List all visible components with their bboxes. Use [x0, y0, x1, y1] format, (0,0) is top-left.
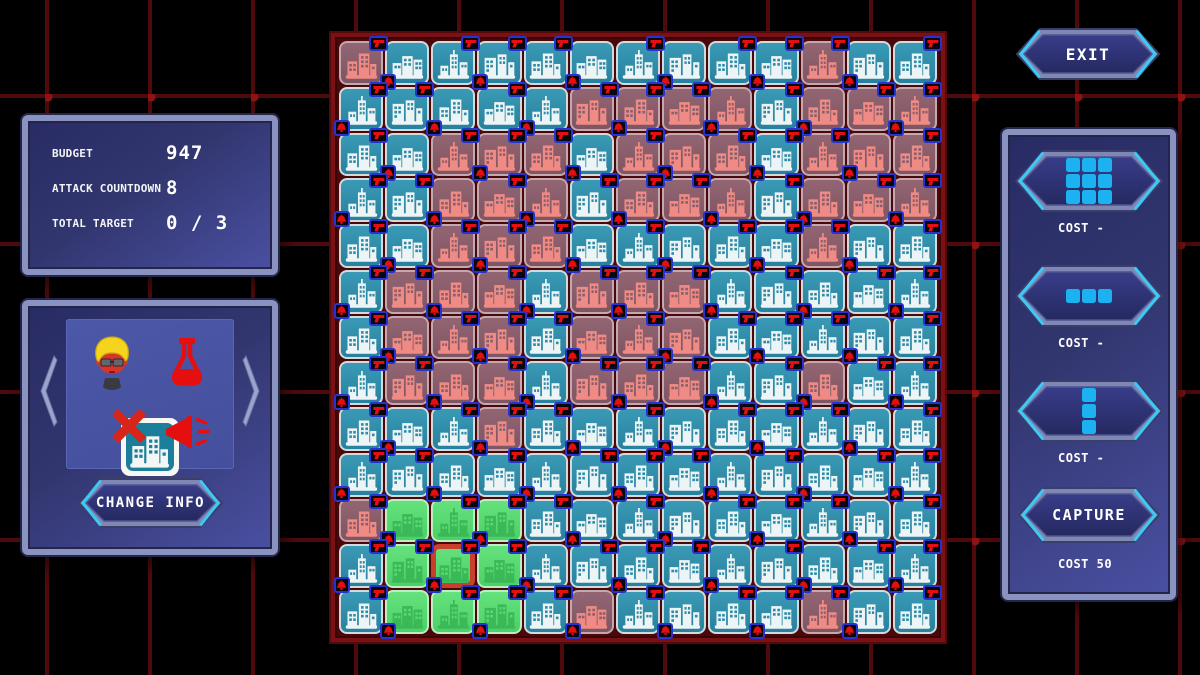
attack-countdown-row: ATTACK COUNTDOWN 8: [52, 177, 272, 199]
gun-icon: [369, 539, 388, 554]
gun-icon: [369, 402, 388, 417]
gun-icon: [646, 219, 665, 234]
building-icon: [713, 508, 748, 539]
board-tile[interactable]: [662, 590, 706, 634]
gun-icon: [508, 36, 527, 51]
gun-icon: [785, 402, 804, 417]
board-tile[interactable]: [616, 316, 660, 360]
board-tile[interactable]: [847, 361, 891, 405]
board-tile[interactable]: [708, 407, 752, 451]
bell-icon: [888, 120, 904, 136]
board-tile[interactable]: [801, 87, 845, 131]
building-icon: [713, 142, 748, 173]
board-tile[interactable]: [524, 316, 568, 360]
board-tile[interactable]: [616, 270, 660, 314]
gun-icon: [646, 36, 665, 51]
board-tile[interactable]: [847, 270, 891, 314]
board-tile[interactable]: [431, 316, 475, 360]
gun-icon: [785, 494, 804, 509]
board-tile[interactable]: [754, 407, 798, 451]
board-tile[interactable]: [847, 133, 891, 177]
board-tile[interactable]: [708, 590, 752, 634]
building-icon: [759, 279, 794, 310]
board-tile[interactable]: [662, 407, 706, 451]
bell-icon: [749, 165, 765, 181]
bell-icon: [611, 303, 627, 319]
board-tile[interactable]: [385, 499, 429, 543]
board-tile[interactable]: [570, 41, 614, 85]
building-icon: [805, 417, 840, 448]
board-tile[interactable]: [801, 224, 845, 268]
board-tile[interactable]: [524, 178, 568, 222]
board-tile[interactable]: [801, 590, 845, 634]
building-icon: [713, 417, 748, 448]
capture-button[interactable]: CAPTURE: [1018, 487, 1160, 543]
bell-icon: [334, 120, 350, 136]
board-tile[interactable]: [801, 544, 845, 588]
board-tile[interactable]: [662, 453, 706, 497]
shape-button-3x1[interactable]: [1015, 380, 1163, 442]
board-tile[interactable]: [662, 544, 706, 588]
board-tile[interactable]: [754, 270, 798, 314]
shape-square: [1098, 190, 1112, 204]
gun-icon: [923, 585, 942, 600]
bell-icon: [749, 257, 765, 273]
board-tile[interactable]: [708, 178, 752, 222]
board-tile[interactable]: [524, 270, 568, 314]
board-tile[interactable]: [847, 544, 891, 588]
board-tile[interactable]: [385, 407, 429, 451]
board-tile[interactable]: [754, 224, 798, 268]
gun-icon: [831, 311, 850, 326]
board-tile[interactable]: [847, 453, 891, 497]
gun-icon: [785, 173, 804, 188]
board-tile[interactable]: [524, 87, 568, 131]
board-tile[interactable]: [662, 270, 706, 314]
board-tile[interactable]: [754, 590, 798, 634]
board-tile[interactable]: [708, 544, 752, 588]
board-tile[interactable]: [801, 499, 845, 543]
board-tile[interactable]: [339, 407, 383, 451]
block-3x3-icon: [1015, 150, 1163, 212]
board-tile[interactable]: [339, 270, 383, 314]
board-tile[interactable]: [385, 590, 429, 634]
gun-icon: [831, 128, 850, 143]
board-tile[interactable]: [847, 224, 891, 268]
building-icon: [897, 417, 932, 448]
board-tile[interactable]: [570, 407, 614, 451]
board-tile[interactable]: [431, 224, 475, 268]
board-tile[interactable]: [708, 270, 752, 314]
board-tile[interactable]: [385, 316, 429, 360]
board-tile[interactable]: [708, 499, 752, 543]
board-tile[interactable]: [339, 224, 383, 268]
gun-icon: [369, 356, 388, 371]
next-character-arrow[interactable]: [242, 355, 262, 427]
board-tile[interactable]: [616, 407, 660, 451]
board-tile[interactable]: [616, 224, 660, 268]
gun-icon: [461, 36, 480, 51]
building-icon: [713, 50, 748, 81]
board-tile[interactable]: [847, 316, 891, 360]
gun-icon: [508, 356, 527, 371]
bell-icon: [611, 211, 627, 227]
board-tile[interactable]: [801, 178, 845, 222]
board-tile[interactable]: [893, 87, 937, 131]
board-tile-selected[interactable]: [431, 544, 475, 588]
board-tile[interactable]: [801, 453, 845, 497]
board-tile[interactable]: [477, 87, 521, 131]
board-tile[interactable]: [477, 544, 521, 588]
board-tile[interactable]: [662, 133, 706, 177]
gun-icon: [785, 219, 804, 234]
board-tile[interactable]: [754, 544, 798, 588]
gun-icon: [508, 539, 527, 554]
board-tile[interactable]: [801, 41, 845, 85]
gun-icon: [461, 128, 480, 143]
bell-icon: [426, 577, 442, 593]
building-icon: [482, 96, 517, 127]
building-icon: [897, 142, 932, 173]
bell-icon: [611, 394, 627, 410]
board-tile[interactable]: [477, 453, 521, 497]
board-tile[interactable]: [385, 41, 429, 85]
total-target-label: TOTAL TARGET: [52, 217, 166, 230]
exit-button[interactable]: EXIT: [1016, 28, 1160, 80]
board-tile[interactable]: [893, 590, 937, 634]
board-tile[interactable]: [477, 133, 521, 177]
gun-icon: [646, 539, 665, 554]
board-tile[interactable]: [524, 133, 568, 177]
stats-panel: BUDGET 947 ATTACK COUNTDOWN 8 TOTAL TARG…: [22, 115, 278, 275]
board-tile[interactable]: [477, 41, 521, 85]
board-tile[interactable]: [339, 590, 383, 634]
column-3x1-icon: [1015, 380, 1163, 442]
bell-icon: [472, 257, 488, 273]
gun-icon: [508, 219, 527, 234]
board-tile[interactable]: [477, 270, 521, 314]
building-icon: [528, 142, 563, 173]
gun-icon: [646, 402, 665, 417]
board-tile[interactable]: [385, 453, 429, 497]
board-tile[interactable]: [477, 178, 521, 222]
bell-icon: [472, 74, 488, 90]
board-tile[interactable]: [570, 224, 614, 268]
bell-icon: [842, 623, 858, 639]
board-tile[interactable]: [893, 544, 937, 588]
board-tile[interactable]: [616, 590, 660, 634]
board-tile[interactable]: [385, 133, 429, 177]
board-tile[interactable]: [339, 544, 383, 588]
board-tile[interactable]: [847, 407, 891, 451]
board-tile[interactable]: [708, 361, 752, 405]
board-tile[interactable]: [431, 87, 475, 131]
gun-icon: [877, 539, 896, 554]
gun-icon: [785, 311, 804, 326]
board-tile[interactable]: [662, 224, 706, 268]
gun-icon: [554, 128, 573, 143]
board-tile[interactable]: [524, 590, 568, 634]
board-tile[interactable]: [662, 499, 706, 543]
building-icon: [344, 233, 379, 264]
gun-icon: [646, 311, 665, 326]
board-tile[interactable]: [477, 361, 521, 405]
board-tile[interactable]: [339, 361, 383, 405]
board-tile[interactable]: [524, 544, 568, 588]
building-icon: [528, 325, 563, 356]
board-tile[interactable]: [754, 133, 798, 177]
board-tile[interactable]: [570, 178, 614, 222]
gun-icon: [600, 265, 619, 280]
board-tile[interactable]: [570, 270, 614, 314]
board-tile[interactable]: [847, 41, 891, 85]
change-info-label: CHANGE INFO: [78, 478, 223, 528]
building-icon: [528, 600, 563, 631]
gun-icon: [923, 82, 942, 97]
board-tile[interactable]: [847, 87, 891, 131]
gun-icon: [554, 402, 573, 417]
gun-icon: [415, 448, 434, 463]
board-tile[interactable]: [570, 453, 614, 497]
flask-icon: [167, 337, 207, 386]
cost-label-3x3: COST -: [1058, 221, 1104, 235]
board-tile[interactable]: [385, 178, 429, 222]
board-tile[interactable]: [339, 133, 383, 177]
board-tile[interactable]: [893, 41, 937, 85]
board-tile[interactable]: [431, 499, 475, 543]
gun-icon: [738, 36, 757, 51]
gun-icon: [600, 539, 619, 554]
gun-icon: [877, 173, 896, 188]
character-card: [66, 319, 234, 469]
building-icon: [436, 233, 471, 264]
board-tile[interactable]: [893, 178, 937, 222]
building-icon: [851, 279, 886, 310]
building-icon: [713, 233, 748, 264]
board-tile[interactable]: [847, 178, 891, 222]
capture-cost-label: COST 50: [1058, 557, 1112, 571]
board-tile[interactable]: [847, 590, 891, 634]
board-tile[interactable]: [662, 316, 706, 360]
board-tile[interactable]: [431, 41, 475, 85]
board-tile[interactable]: [570, 590, 614, 634]
board-tile[interactable]: [616, 178, 660, 222]
board-tile[interactable]: [616, 544, 660, 588]
board-tile[interactable]: [431, 590, 475, 634]
bell-icon: [842, 257, 858, 273]
board-tile[interactable]: [616, 133, 660, 177]
shape-square: [1066, 190, 1080, 204]
building-icon: [851, 371, 886, 402]
board-tile[interactable]: [754, 178, 798, 222]
board-tile[interactable]: [570, 316, 614, 360]
board-tile[interactable]: [570, 87, 614, 131]
building-icon: [528, 508, 563, 539]
building-icon: [528, 233, 563, 264]
cost-label-3x1: COST -: [1058, 451, 1104, 465]
board-tile[interactable]: [708, 453, 752, 497]
gun-icon: [508, 82, 527, 97]
board-tile[interactable]: [431, 453, 475, 497]
bell-icon: [842, 74, 858, 90]
budget-value: 947: [166, 142, 203, 164]
board-tile[interactable]: [893, 499, 937, 543]
board-tile[interactable]: [616, 361, 660, 405]
board-tile[interactable]: [339, 41, 383, 85]
gun-icon: [461, 539, 480, 554]
board-tile[interactable]: [754, 361, 798, 405]
board-tile[interactable]: [662, 87, 706, 131]
capture-label: CAPTURE: [1018, 487, 1160, 543]
board-tile[interactable]: [385, 224, 429, 268]
board-tile[interactable]: [339, 499, 383, 543]
gun-icon: [785, 265, 804, 280]
building-icon: [482, 462, 517, 493]
gun-icon: [738, 585, 757, 600]
board-tile[interactable]: [339, 316, 383, 360]
board-tile[interactable]: [708, 87, 752, 131]
board-tile[interactable]: [893, 361, 937, 405]
gun-icon: [508, 265, 527, 280]
board-tile[interactable]: [893, 453, 937, 497]
board-tile[interactable]: [754, 453, 798, 497]
row-1x3-icon: [1015, 265, 1163, 327]
board-tile[interactable]: [754, 499, 798, 543]
gun-icon: [600, 448, 619, 463]
board-tile[interactable]: [431, 133, 475, 177]
cost-label-1x3: COST -: [1058, 336, 1104, 350]
gun-icon: [785, 36, 804, 51]
gun-icon: [877, 265, 896, 280]
board-tile[interactable]: [893, 224, 937, 268]
board-tile[interactable]: [893, 316, 937, 360]
board-tile[interactable]: [754, 316, 798, 360]
board-tile[interactable]: [801, 133, 845, 177]
bell-icon: [334, 577, 350, 593]
board-tile[interactable]: [708, 133, 752, 177]
board-tile[interactable]: [662, 178, 706, 222]
bell-icon: [611, 120, 627, 136]
shape-square: [1082, 174, 1096, 188]
bell-icon: [565, 165, 581, 181]
board-tile[interactable]: [385, 544, 429, 588]
building-icon: [390, 554, 425, 585]
board-tile[interactable]: [616, 87, 660, 131]
bell-icon: [703, 211, 719, 227]
board-tile[interactable]: [893, 133, 937, 177]
gun-icon: [831, 585, 850, 600]
board-tile[interactable]: [524, 41, 568, 85]
board-tile[interactable]: [385, 361, 429, 405]
gun-icon: [738, 494, 757, 509]
building-icon: [436, 325, 471, 356]
board-tile[interactable]: [616, 41, 660, 85]
board-tile[interactable]: [708, 224, 752, 268]
change-info-button[interactable]: CHANGE INFO: [78, 478, 223, 528]
gun-icon: [923, 539, 942, 554]
board-tile[interactable]: [385, 87, 429, 131]
bell-icon: [472, 348, 488, 364]
board-tile[interactable]: [570, 544, 614, 588]
building-icon: [436, 508, 471, 539]
board-tile[interactable]: [431, 407, 475, 451]
board-tile[interactable]: [754, 41, 798, 85]
board-tile[interactable]: [662, 361, 706, 405]
gun-icon: [461, 219, 480, 234]
gun-icon: [508, 585, 527, 600]
board-tile[interactable]: [893, 407, 937, 451]
board-tile[interactable]: [570, 361, 614, 405]
bell-icon: [888, 303, 904, 319]
board-tile[interactable]: [708, 41, 752, 85]
board-tile[interactable]: [801, 270, 845, 314]
board-tile[interactable]: [339, 453, 383, 497]
board-tile[interactable]: [339, 87, 383, 131]
board-tile[interactable]: [616, 499, 660, 543]
bell-icon: [842, 531, 858, 547]
board-tile[interactable]: [477, 499, 521, 543]
gun-icon: [415, 82, 434, 97]
gun-icon: [554, 36, 573, 51]
board-tile[interactable]: [524, 407, 568, 451]
board-tile[interactable]: [524, 499, 568, 543]
board-tile[interactable]: [801, 361, 845, 405]
gun-icon: [369, 265, 388, 280]
board-tile[interactable]: [662, 41, 706, 85]
board-tile[interactable]: [524, 361, 568, 405]
board-tile[interactable]: [385, 270, 429, 314]
building-icon: [805, 233, 840, 264]
gun-icon: [738, 311, 757, 326]
board-tile[interactable]: [801, 407, 845, 451]
building-icon: [667, 96, 702, 127]
gun-icon: [923, 173, 942, 188]
board-tile[interactable]: [847, 499, 891, 543]
building-icon: [344, 600, 379, 631]
board-tile[interactable]: [431, 270, 475, 314]
board-tile[interactable]: [893, 270, 937, 314]
board-tile[interactable]: [616, 453, 660, 497]
bell-icon: [749, 440, 765, 456]
previous-character-arrow[interactable]: [38, 355, 58, 427]
bell-icon: [565, 531, 581, 547]
board-tile[interactable]: [477, 316, 521, 360]
board-tile[interactable]: [708, 316, 752, 360]
board-tile[interactable]: [570, 499, 614, 543]
board-tile[interactable]: [801, 316, 845, 360]
shape-button-1x3[interactable]: [1015, 265, 1163, 327]
board-tile[interactable]: [754, 87, 798, 131]
gun-icon: [877, 82, 896, 97]
gun-icon: [646, 494, 665, 509]
board-tile[interactable]: [524, 453, 568, 497]
board-tile[interactable]: [339, 178, 383, 222]
gun-icon: [692, 82, 711, 97]
board-tile[interactable]: [477, 224, 521, 268]
gun-icon: [554, 311, 573, 326]
gun-icon: [877, 356, 896, 371]
board-tile[interactable]: [477, 407, 521, 451]
board-tile[interactable]: [477, 590, 521, 634]
gun-icon: [554, 494, 573, 509]
building-icon: [390, 96, 425, 127]
board-tile[interactable]: [570, 133, 614, 177]
board-tile[interactable]: [431, 178, 475, 222]
board-tile[interactable]: [524, 224, 568, 268]
board-tile[interactable]: [431, 361, 475, 405]
gun-icon: [923, 356, 942, 371]
shape-button-3x3[interactable]: [1015, 150, 1163, 212]
